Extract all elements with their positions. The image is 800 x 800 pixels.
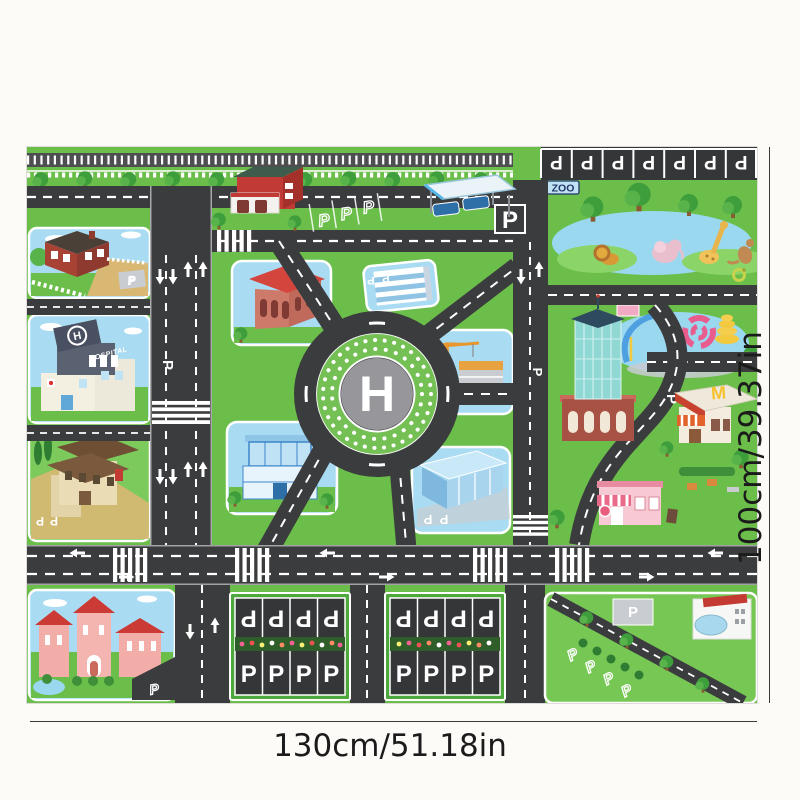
parking-letter: P: [268, 661, 284, 688]
park-sign: [617, 305, 639, 316]
parking-letter: P: [396, 605, 412, 632]
parking-letter: P: [642, 151, 655, 172]
parking-letter: P: [673, 151, 686, 172]
parking-letter: P: [323, 661, 339, 688]
parking-letter: P: [396, 661, 412, 688]
parking-letter: P: [423, 512, 432, 527]
parking-letter: P: [296, 661, 312, 688]
house-block: P: [29, 228, 150, 298]
menu-board-icon: [666, 508, 678, 523]
cafe-sign-icon: [600, 506, 611, 517]
fire-station: [231, 167, 303, 213]
parking-letter: P: [439, 512, 448, 527]
mansion-block: P P: [29, 432, 150, 541]
parking-letter: P: [735, 151, 748, 172]
parking-letter: P: [530, 368, 545, 377]
parking-letter: P: [241, 605, 257, 632]
parking-letter: P: [296, 605, 312, 632]
parking-letter: P: [423, 661, 439, 688]
parking-letter: P: [478, 605, 494, 632]
height-dimension-line: [769, 147, 770, 703]
parking-letter: P: [451, 605, 467, 632]
parking-letter: P: [367, 274, 374, 286]
parking-letter: P: [581, 151, 594, 172]
school-block: P: [29, 590, 175, 700]
picnic-table-icon: [687, 483, 697, 490]
parking-lot: P P P P P P P P: [230, 593, 350, 700]
hedge: [679, 467, 735, 476]
parking-letter: P: [159, 360, 176, 370]
hospital-block: H HOSPITAL: [29, 315, 150, 423]
parking-letter: P: [478, 661, 494, 688]
parking-letter: P: [451, 661, 467, 688]
parking-letter: P: [36, 514, 44, 528]
picnic-table-icon: [707, 479, 717, 486]
width-dimension-line: [30, 721, 757, 722]
parking-letter: P: [50, 514, 58, 528]
product-photo: P P P P P P P: [0, 0, 800, 800]
parking-lot: P P P P P P P P: [385, 593, 505, 700]
helipad-roundabout: H: [294, 311, 460, 477]
parking-letter: P: [550, 151, 563, 172]
height-dimension-label: 100cm/39.37in: [733, 298, 769, 598]
parking-letter: P: [628, 604, 638, 621]
parking-letter: P: [323, 605, 339, 632]
play-mat: P P P P P P P: [27, 147, 757, 703]
burger-sign-letter: M: [710, 383, 726, 404]
parking-letter: P: [423, 605, 439, 632]
zoo-sign-label: ZOO: [552, 183, 575, 195]
width-dimension-label: 130cm/51.18in: [230, 728, 550, 764]
parking-letter: P: [268, 605, 284, 632]
helipad-letter: H: [359, 366, 395, 422]
exhibition-block: P P P P P: [545, 593, 757, 703]
parking-letter: P: [241, 661, 257, 688]
parking-letter: P: [382, 272, 389, 284]
parking-letter: P: [611, 151, 624, 172]
exhibition-hall-building: [693, 594, 751, 639]
zoo-parking-row: P P P P P P P: [541, 147, 757, 180]
parking-letter: P: [704, 151, 717, 172]
